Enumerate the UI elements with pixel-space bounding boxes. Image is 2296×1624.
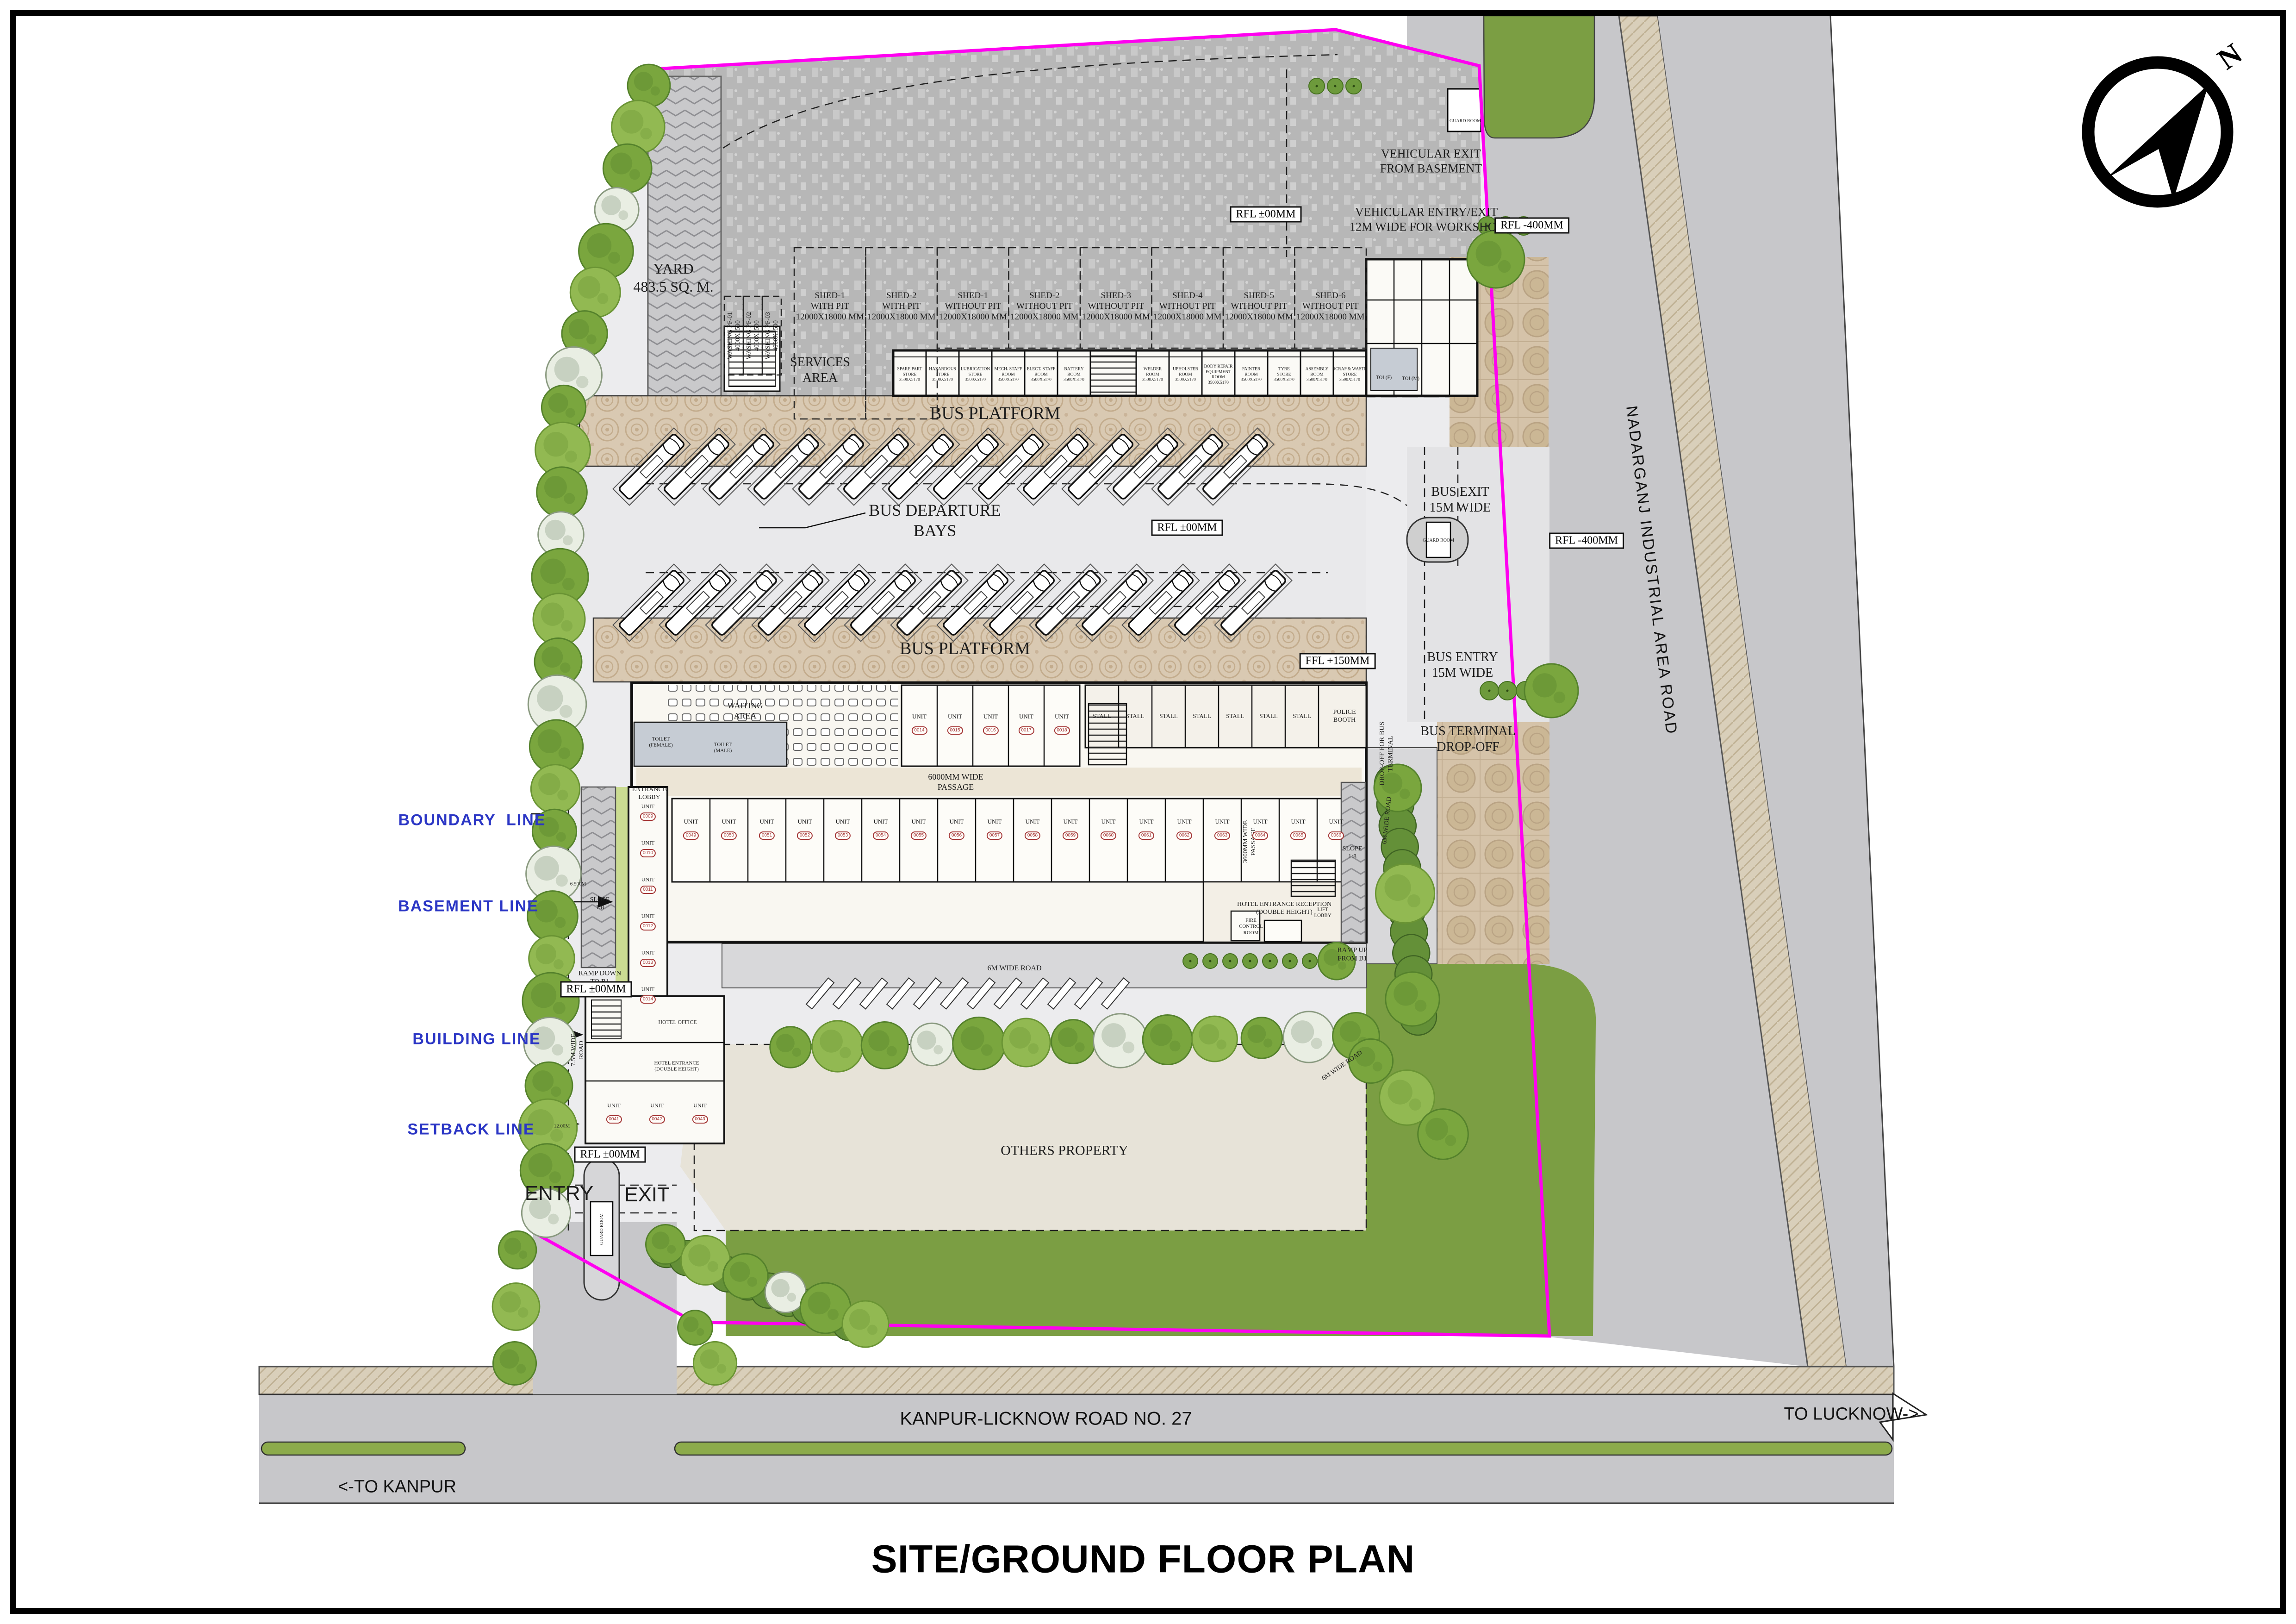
unit-label: UNIT — [641, 803, 655, 810]
annotation-blue: BOUNDARY LINE — [398, 812, 546, 830]
unit-label: UNIT — [987, 818, 1002, 825]
road-median-left — [261, 1442, 465, 1455]
plan-label: HOTEL OFFICE — [658, 1019, 697, 1026]
plan-label: 6M WIDE ROAD — [987, 964, 1041, 973]
unit-tag: 0010 — [640, 849, 656, 857]
west-units-building — [628, 787, 667, 1016]
unit-label: UNIT — [693, 1102, 707, 1109]
tree — [842, 1301, 889, 1347]
unit-tag: 0065 — [1290, 831, 1306, 840]
unit-label: UNIT — [641, 839, 655, 846]
tree — [531, 765, 579, 813]
tree — [646, 1225, 685, 1264]
annotation-blue: SETBACK LINE — [407, 1121, 535, 1139]
unit-tag: 0041 — [606, 1115, 622, 1124]
workshop-room-label: HAZARDOUS STORE 3500X5170 — [929, 367, 956, 383]
unit-label: UNIT — [759, 818, 774, 825]
unit-label: UNIT — [1055, 713, 1069, 720]
bottom-road-name: KANPUR-LICKNOW ROAD NO. 27 — [900, 1409, 1192, 1430]
stall-label: STALL — [1193, 712, 1211, 720]
plan-label: BUS DEPARTURE BAYS — [869, 500, 1001, 541]
plan-label: TOILET (FEMALE) — [649, 737, 672, 749]
tree — [570, 267, 620, 317]
level-marker: RFL ±00MM — [560, 981, 632, 998]
tree — [861, 1022, 908, 1069]
tree — [770, 1027, 811, 1068]
plan-label: 12.00M — [554, 1123, 570, 1129]
shrub — [1480, 681, 1499, 700]
others-property-ground — [680, 1044, 1366, 1230]
shed-label: SHED-3 WITHOUT PIT 12000X18000 MM — [1082, 290, 1150, 323]
workshop-room-label: LUBRICATION STORE 3500X5170 — [961, 367, 990, 383]
unit-label: UNIT — [684, 818, 698, 825]
shrub — [1302, 954, 1317, 968]
tree — [1241, 1018, 1282, 1058]
shrub — [1203, 954, 1218, 968]
plan-label: 7.5M WIDE ROAD — [570, 1034, 585, 1066]
workshop-room-label: TYRE STORE 3500X5170 — [1274, 367, 1294, 383]
unit-label: UNIT — [835, 818, 850, 825]
plan-label: RAMP UP FROM B1 — [1338, 946, 1368, 963]
unit-label: UNIT — [1329, 818, 1343, 825]
level-marker: RFL ±00MM — [1151, 520, 1223, 536]
unit-tag: 0064 — [1252, 831, 1268, 840]
plan-label: ENTRY — [525, 1181, 593, 1206]
plan-label: GUARD ROOM — [1423, 538, 1454, 543]
unit-label: UNIT — [1177, 818, 1191, 825]
shed-label: SHED-2 WITH PIT 12000X18000 MM — [867, 290, 935, 323]
plan-label: TOILET (MALE) — [714, 742, 732, 755]
plan-label: OTHERS PROPERTY — [1001, 1143, 1128, 1160]
plan-label: WAITING AREA — [728, 701, 763, 721]
stall-label: STALL — [1226, 712, 1244, 720]
shed-label: SHED-1 WITHOUT PIT 12000X18000 MM — [939, 290, 1007, 323]
workshop-room-label: BODY REPAIR EQUIPMENT ROOM 3500X5170 — [1204, 364, 1233, 386]
plan-label: FIRE CONTROL ROOM — [1239, 918, 1263, 936]
unit-tag: 0012 — [640, 922, 656, 931]
unit-label: UNIT — [983, 713, 998, 720]
shed-label: SHED-2 WITHOUT PIT 12000X18000 MM — [1010, 290, 1078, 323]
workshop-room-label: BATTERY ROOM 3500X5170 — [1064, 367, 1084, 383]
plan-label: TOI (M) — [1402, 375, 1419, 381]
unit-tag: 0009 — [640, 812, 656, 821]
unit-label: UNIT — [1139, 818, 1153, 825]
unit-tag: 0018 — [1054, 726, 1070, 735]
shrub — [1346, 78, 1362, 94]
plan-label: SLOPE 1:8 — [590, 896, 610, 912]
tree — [723, 1254, 768, 1299]
shed-label: SHED-6 WITHOUT PIT 12000X18000 MM — [1296, 290, 1364, 323]
unit-label: UNIT — [650, 1102, 664, 1109]
unit-label: UNIT — [873, 818, 888, 825]
tree — [498, 1231, 536, 1269]
shrub — [1498, 681, 1517, 700]
to-lucknow-label: TO LUCKNOW-> — [1784, 1405, 1918, 1424]
plan-label: BUS ENTRY 15M WIDE — [1427, 650, 1498, 681]
stall-label: STALL — [1159, 712, 1177, 720]
unit-label: UNIT — [1291, 818, 1305, 825]
unit-tag: 0049 — [683, 831, 699, 840]
north-compass — [2088, 62, 2227, 201]
washing-label: WASHING PF-01 4000X1500 — [726, 312, 741, 359]
unit-tag: 0016 — [983, 726, 998, 735]
unit-label: UNIT — [1063, 818, 1077, 825]
to-kanpur-label: <-TO KANPUR — [338, 1477, 456, 1497]
shed-label: SHED-1 WITH PIT 12000X18000 MM — [796, 290, 864, 323]
washing-label: WASHING PF-02 4000X1500 — [745, 312, 760, 359]
tree — [603, 144, 652, 193]
stall-label: STALL — [1126, 712, 1144, 720]
plan-label: GUARD ROOM — [1450, 119, 1481, 124]
plan-label: VEHICULAR EXIT FROM BASEMENT — [1380, 146, 1482, 175]
unit-tag: 0052 — [797, 831, 813, 840]
unit-label: UNIT — [1253, 818, 1267, 825]
unit-tag: 0050 — [721, 831, 737, 840]
site-plan-sheet: SITE/GROUND FLOOR PLAN N KANPUR-LICKNOW … — [0, 0, 2296, 1624]
unit-label: UNIT — [641, 949, 655, 956]
plan-label: TOI (F) — [1376, 375, 1392, 381]
page-title: SITE/GROUND FLOOR PLAN — [871, 1537, 1415, 1582]
plan-label: BUS TERMINAL DROP-OFF — [1420, 724, 1516, 755]
level-marker: RFL ±00MM — [1230, 206, 1302, 223]
tree — [812, 1021, 863, 1072]
level-marker: RFL -400MM — [1549, 533, 1624, 549]
shrub — [1327, 78, 1343, 94]
unit-tag: 0015 — [947, 726, 963, 735]
tree — [493, 1342, 536, 1385]
unit-label: UNIT — [607, 1102, 621, 1109]
unit-label: UNIT — [949, 818, 964, 825]
workshop-room-label: MECH. STAFF ROOM 3500X5170 — [995, 367, 1022, 383]
tree — [1524, 664, 1578, 718]
level-marker: RFL -400MM — [1494, 218, 1569, 234]
workshop-room-label: ELECT. STAFF ROOM 3500X5170 — [1027, 367, 1055, 383]
unit-tag: 0054 — [873, 831, 889, 840]
unit-tag: 0060 — [1101, 831, 1116, 840]
unit-tag: 0043 — [692, 1115, 708, 1124]
unit-tag: 0051 — [759, 831, 775, 840]
tree — [911, 1023, 953, 1066]
unit-label: UNIT — [911, 818, 926, 825]
shrub — [1309, 78, 1325, 94]
plan-label: BUS EXIT 15M WIDE — [1430, 484, 1491, 516]
road-median-right — [675, 1442, 1892, 1455]
plan-drawing — [0, 0, 2296, 1624]
guard-room-top — [1448, 89, 1481, 131]
unit-tag: 0053 — [835, 831, 851, 840]
unit-tag: 0062 — [1176, 831, 1192, 840]
workshop-room-label: UPHOLSTER ROOM 3500X5170 — [1173, 367, 1198, 383]
ramp-up-b1 — [1341, 782, 1365, 942]
shrub — [1263, 954, 1277, 968]
unit-tag: 0017 — [1018, 726, 1034, 735]
unit-label: UNIT — [797, 818, 812, 825]
ramp-down-b1 — [581, 787, 616, 968]
unit-label: UNIT — [1101, 818, 1115, 825]
plan-label: BUS PLATFORM — [900, 638, 1030, 659]
stall-label: STALL — [1259, 712, 1277, 720]
unit-label: UNIT — [722, 818, 736, 825]
unit-tag: 0014 — [640, 995, 656, 1004]
tree — [693, 1342, 736, 1385]
workshop-room-label: WELDER ROOM 3500X5170 — [1142, 367, 1163, 383]
unit-tag: 0059 — [1063, 831, 1078, 840]
tree — [537, 467, 587, 518]
unit-label: UNIT — [641, 876, 655, 883]
tree — [1002, 1018, 1050, 1067]
tree — [492, 1283, 540, 1330]
shrub — [1282, 954, 1297, 968]
tree — [1467, 231, 1524, 288]
tree — [953, 1017, 1005, 1069]
tree — [1418, 1109, 1468, 1160]
unit-tag: 0056 — [949, 831, 964, 840]
annotation-blue: BASEMENT LINE — [398, 898, 539, 916]
unit-tag: 0014 — [911, 726, 927, 735]
tree — [1192, 1016, 1238, 1062]
plan-label: GUARD ROOM — [599, 1213, 605, 1245]
tree — [1052, 1020, 1095, 1064]
stall-label: STALL — [1093, 712, 1111, 720]
unit-label: UNIT — [641, 986, 655, 993]
unit-tag: 0066 — [1328, 831, 1344, 840]
unit-tag: 0057 — [987, 831, 1002, 840]
unit-label: UNIT — [912, 713, 927, 720]
unit-label: UNIT — [1025, 818, 1039, 825]
annotation-blue: BUILDING LINE — [412, 1031, 541, 1049]
plan-label: EXIT — [624, 1182, 670, 1207]
shed-label: SHED-5 WITHOUT PIT 12000X18000 MM — [1225, 290, 1293, 323]
unit-tag: 0011 — [640, 886, 656, 894]
workshop-room-label: PAINTER ROOM 3500X5170 — [1241, 367, 1262, 383]
shrub — [1243, 954, 1257, 968]
tree — [1283, 1012, 1334, 1062]
tree — [1386, 972, 1439, 1026]
tree — [1094, 1014, 1147, 1068]
plan-label: BUS PLATFORM — [930, 403, 1060, 424]
plan-label: POLICE BOOTH — [1333, 708, 1356, 724]
unit-label: UNIT — [1019, 713, 1033, 720]
shrub — [1223, 954, 1238, 968]
plan-label: ENTRANCE LOBBY — [632, 786, 667, 801]
workshop-room-label: SCRAP & WASTE STORE 3500X5170 — [1333, 367, 1367, 383]
unit-tag: 0063 — [1214, 831, 1230, 840]
workshop-stair — [1090, 350, 1136, 396]
plan-label: 6.500M — [570, 881, 586, 887]
unit-tag: 0061 — [1139, 831, 1154, 840]
stall-label: STALL — [1293, 712, 1311, 720]
unit-label: UNIT — [948, 713, 962, 720]
unit-tag: 0055 — [911, 831, 927, 840]
unit-label: UNIT — [1215, 818, 1229, 825]
tree — [1375, 864, 1434, 923]
plan-label: DROP-OFF FOR BUS TERMINAL — [1378, 722, 1395, 786]
shed-label: SHED-4 WITHOUT PIT 12000X18000 MM — [1153, 290, 1221, 323]
shrub — [1183, 954, 1198, 968]
plan-label: VEHICULAR ENTRY/EXIT 12M WIDE FOR WORKSH… — [1350, 205, 1503, 234]
workshop-room-label: ASSEMBLY ROOM 3500X5170 — [1306, 367, 1329, 383]
workshop-room-label: SPARE PART STORE 3500X5170 — [897, 367, 922, 383]
tree — [1143, 1015, 1192, 1064]
plan-label: LIFT LOBBY — [1314, 907, 1331, 919]
washing-label: WASHING PF-03 4000X1500 — [764, 312, 779, 359]
paver-dropoff — [1437, 722, 1549, 964]
lawn-corner — [1484, 16, 1594, 138]
plan-label: SERVICES AREA — [790, 355, 850, 386]
level-marker: FFL +150MM — [1300, 653, 1376, 669]
unit-tag: 0058 — [1025, 831, 1040, 840]
unit-label: UNIT — [641, 912, 655, 919]
tree — [678, 1311, 713, 1345]
plan-label: 3600MM WIDE PASSAGE — [1242, 820, 1257, 863]
plan-label: YARD 483.5 SQ. M. — [633, 260, 713, 296]
level-marker: RFL ±00MM — [574, 1147, 646, 1163]
plan-label: 6000MM WIDE PASSAGE — [928, 772, 983, 793]
unit-tag: 0042 — [649, 1115, 665, 1124]
plan-label: HOTEL ENTRANCE (DOUBLE HEIGHT) — [654, 1061, 699, 1073]
plan-label: SLOPE 1:8 — [1343, 845, 1363, 861]
unit-tag: 0013 — [640, 959, 656, 967]
